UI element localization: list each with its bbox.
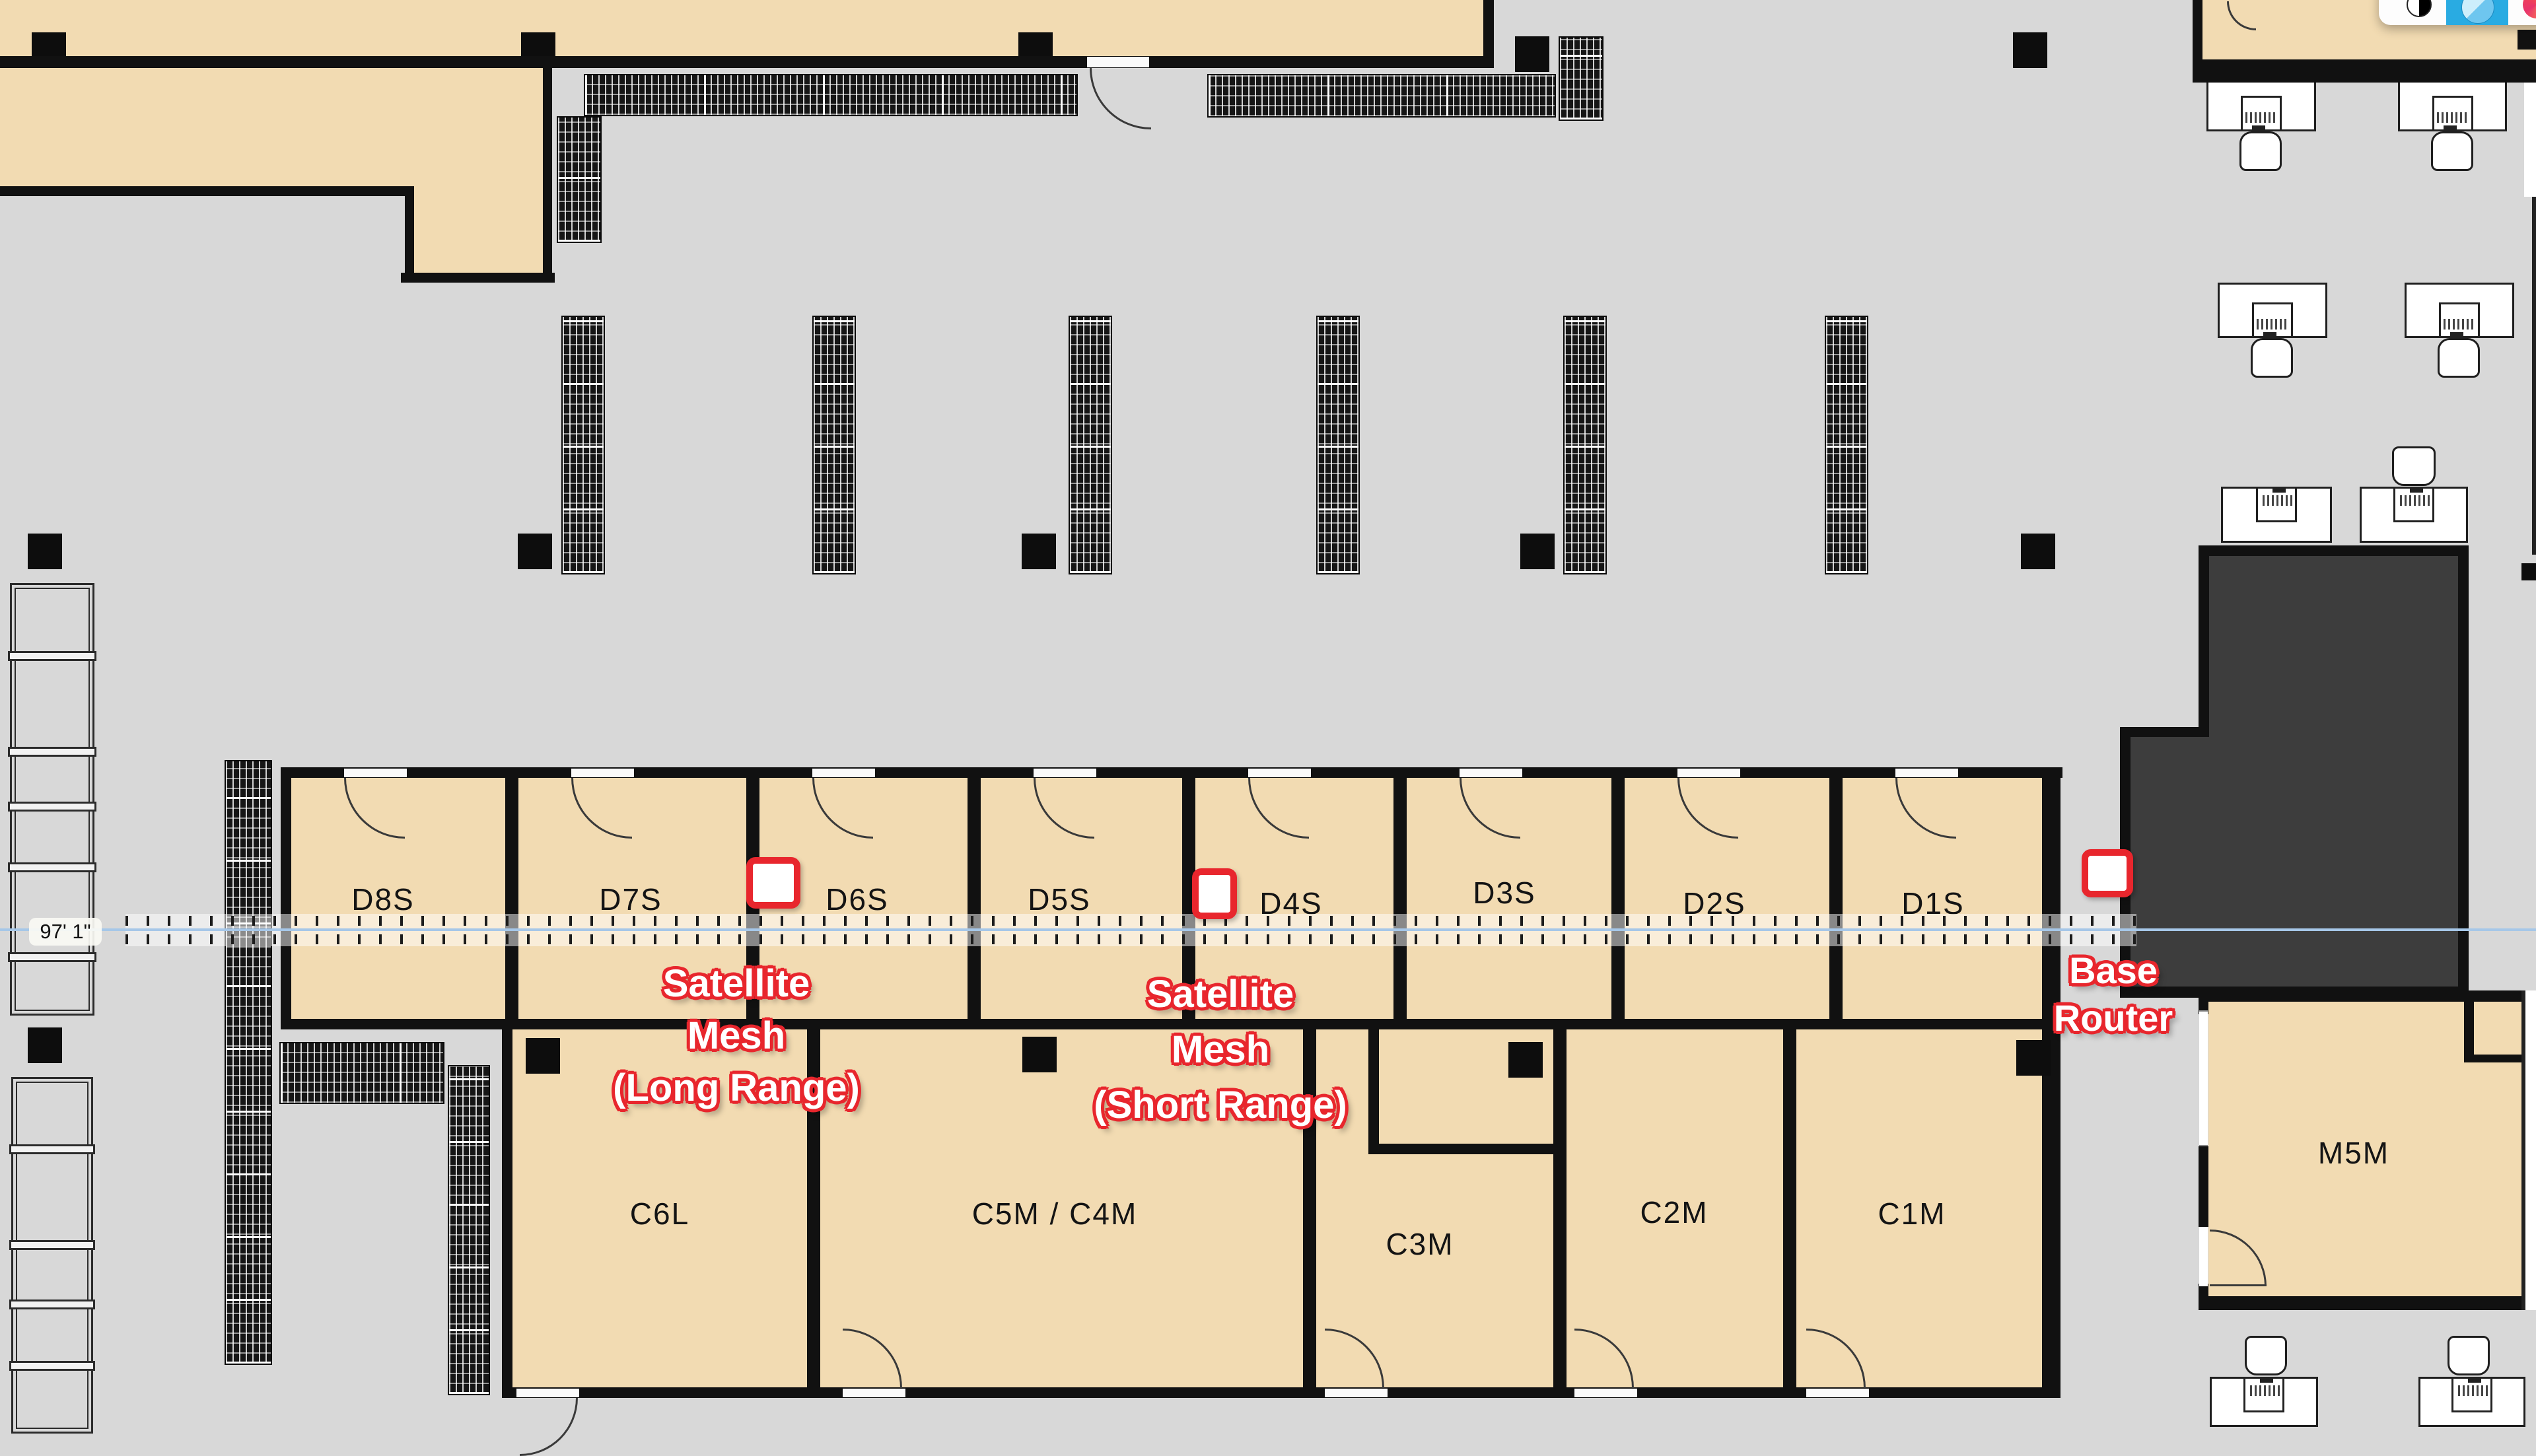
rack-beam <box>9 1240 95 1250</box>
room-label-d7s: D7S <box>599 882 662 917</box>
door-opening <box>1248 769 1311 777</box>
rack-beam <box>9 1144 95 1154</box>
edge-wall-line <box>2532 197 2536 555</box>
structural-column <box>1520 534 1555 569</box>
workstation-icon <box>2252 302 2293 338</box>
satellite-mesh-long-range-label: Satellite Mesh (Long Range) <box>505 957 968 1114</box>
wall <box>2199 545 2209 737</box>
structural-column <box>28 1027 62 1063</box>
room-label-c1m: C1M <box>1878 1196 1946 1231</box>
structural-column <box>1022 534 1056 569</box>
door-opening <box>516 1389 579 1397</box>
rack-beam <box>8 862 96 872</box>
color-wheel-icon[interactable] <box>2523 0 2536 18</box>
desk <box>2218 283 2327 338</box>
storage-rack <box>1563 316 1607 574</box>
contrast-icon[interactable] <box>2407 0 2432 17</box>
room-label-c6l: C6L <box>630 1196 689 1231</box>
satellite-mesh-short-range-label: Satellite Mesh (Short Range) <box>989 967 1452 1133</box>
structural-column <box>2021 534 2055 569</box>
rack-beam <box>8 802 96 812</box>
storage-rack <box>1316 316 1360 574</box>
wall <box>2042 767 2060 1398</box>
edge-white-strip <box>2525 990 2536 1310</box>
room-label-d8s: D8S <box>351 882 414 917</box>
door-swing-arc <box>1090 68 1151 129</box>
wall <box>1611 767 1625 1029</box>
structural-column <box>1515 36 1549 72</box>
storage-rack <box>279 1042 444 1104</box>
rack-frame <box>11 1077 93 1434</box>
upper-building-area <box>0 0 1491 58</box>
storage-rack <box>557 116 602 243</box>
wall <box>1553 1029 1567 1389</box>
chair <box>2245 1336 2287 1375</box>
structural-column <box>2013 32 2047 68</box>
door-opening <box>812 769 875 777</box>
structural-column <box>518 534 552 569</box>
door-opening <box>1087 57 1149 67</box>
wall <box>1483 0 1494 68</box>
door-opening <box>2199 1227 2208 1286</box>
wall <box>2199 990 2536 1002</box>
storage-rack <box>1825 316 1868 574</box>
workstation-icon <box>2243 1377 2284 1412</box>
wall <box>1783 1029 1796 1389</box>
workstation-icon <box>2393 487 2434 522</box>
upper-room-left <box>0 58 409 190</box>
rack-beam <box>8 651 96 661</box>
workstation-icon <box>2451 1377 2492 1412</box>
wall <box>405 196 414 282</box>
chair <box>2251 338 2293 378</box>
wall <box>2125 727 2208 737</box>
storage-rack <box>561 316 605 574</box>
annotation-line: Base <box>1981 947 2245 994</box>
desk <box>2360 487 2468 543</box>
wall <box>1829 767 1843 1029</box>
wall <box>2193 0 2202 83</box>
room-label-d3s: D3S <box>1473 875 1535 911</box>
storage-rack <box>1207 74 1556 118</box>
wall <box>543 58 552 283</box>
chair <box>2448 1336 2490 1375</box>
wall <box>281 767 2062 778</box>
structural-column <box>1508 1042 1543 1078</box>
door-opening <box>1677 769 1740 777</box>
chair <box>2438 338 2480 378</box>
wall <box>2518 30 2536 50</box>
room-label-c2m: C2M <box>1640 1195 1708 1230</box>
rack-frame <box>10 583 94 1016</box>
wall <box>401 273 555 283</box>
annotation-line: (Short Range) <box>989 1078 1452 1133</box>
wall <box>2199 1296 2536 1310</box>
dimension-line <box>0 928 2536 931</box>
wall <box>281 767 291 1029</box>
desk <box>2418 1377 2525 1427</box>
annotation-line: Mesh <box>505 1010 968 1062</box>
rack-beam <box>9 1361 95 1371</box>
storage-rack <box>448 1065 490 1395</box>
edge-white-strip <box>2524 71 2536 197</box>
structural-column <box>2521 563 2536 580</box>
wall <box>2199 1146 2208 1227</box>
workstation-icon <box>2241 96 2282 131</box>
wall <box>2474 1055 2525 1062</box>
upper-room-column <box>409 58 549 276</box>
annotation-line: Router <box>1981 994 2245 1042</box>
door-opening <box>843 1389 905 1397</box>
floating-toolbar <box>2379 0 2536 25</box>
annotation-line: (Long Range) <box>505 1062 968 1114</box>
wall <box>2199 545 2467 556</box>
storage-rack <box>1559 36 1603 121</box>
satellite-mesh-short-range-marker[interactable] <box>1192 868 1237 919</box>
annotation-line: Mesh <box>989 1022 1452 1078</box>
storage-rack <box>225 760 272 1365</box>
door-opening <box>344 769 407 777</box>
wall <box>968 767 981 1029</box>
chair <box>2239 131 2282 171</box>
structural-column <box>2016 1040 2051 1076</box>
room-label-c3m: C3M <box>1386 1226 1454 1262</box>
base-router-marker[interactable] <box>2082 849 2133 897</box>
door-opening <box>1460 769 1522 777</box>
wall <box>0 56 1491 68</box>
rack-beam <box>9 1300 95 1309</box>
room-label-d5s: D5S <box>1028 882 1090 917</box>
workstation-icon <box>2256 487 2297 522</box>
workstation-icon <box>2439 302 2480 338</box>
dimension-label[interactable]: 97' 1" <box>29 918 102 946</box>
rack-beam <box>8 747 96 757</box>
desk <box>2398 76 2507 131</box>
annotation-line: Satellite <box>989 967 1452 1022</box>
dark-room-fill <box>2208 555 2459 987</box>
wall <box>1368 1144 1563 1154</box>
chair <box>2431 131 2473 171</box>
structural-column <box>28 534 62 569</box>
storage-rack <box>1069 316 1112 574</box>
door-opening <box>1034 769 1096 777</box>
rack-beam <box>8 952 96 962</box>
desk <box>2221 487 2332 543</box>
room-label-d6s: D6S <box>826 882 888 917</box>
annotation-line: Satellite <box>505 957 968 1010</box>
desk <box>2206 76 2316 131</box>
workstation-icon <box>2432 96 2473 131</box>
chair <box>2392 446 2436 486</box>
door-opening <box>1895 769 1958 777</box>
storage-rack <box>584 74 1078 116</box>
desk <box>2405 283 2514 338</box>
storage-rack <box>812 316 856 574</box>
ruler-ticks-bottom <box>125 934 2136 944</box>
base-router-label: Base Router <box>1981 947 2245 1042</box>
ruler-ticks-top <box>125 916 2136 926</box>
wall <box>0 186 414 196</box>
signal-heatmap-icon[interactable] <box>2446 0 2508 25</box>
room-label-c5m-c4m: C5M / C4M <box>972 1196 1138 1231</box>
door-opening <box>1325 1389 1388 1397</box>
door-opening <box>1806 1389 1869 1397</box>
room-label-m5m: M5M <box>2318 1135 2389 1171</box>
wall <box>2464 990 2474 1062</box>
door-swing-arc <box>520 1398 578 1456</box>
desk <box>2210 1377 2318 1427</box>
satellite-mesh-long-range-marker[interactable] <box>746 857 800 909</box>
door-opening <box>571 769 634 777</box>
door-opening <box>1574 1389 1637 1397</box>
wall <box>2193 59 2536 83</box>
